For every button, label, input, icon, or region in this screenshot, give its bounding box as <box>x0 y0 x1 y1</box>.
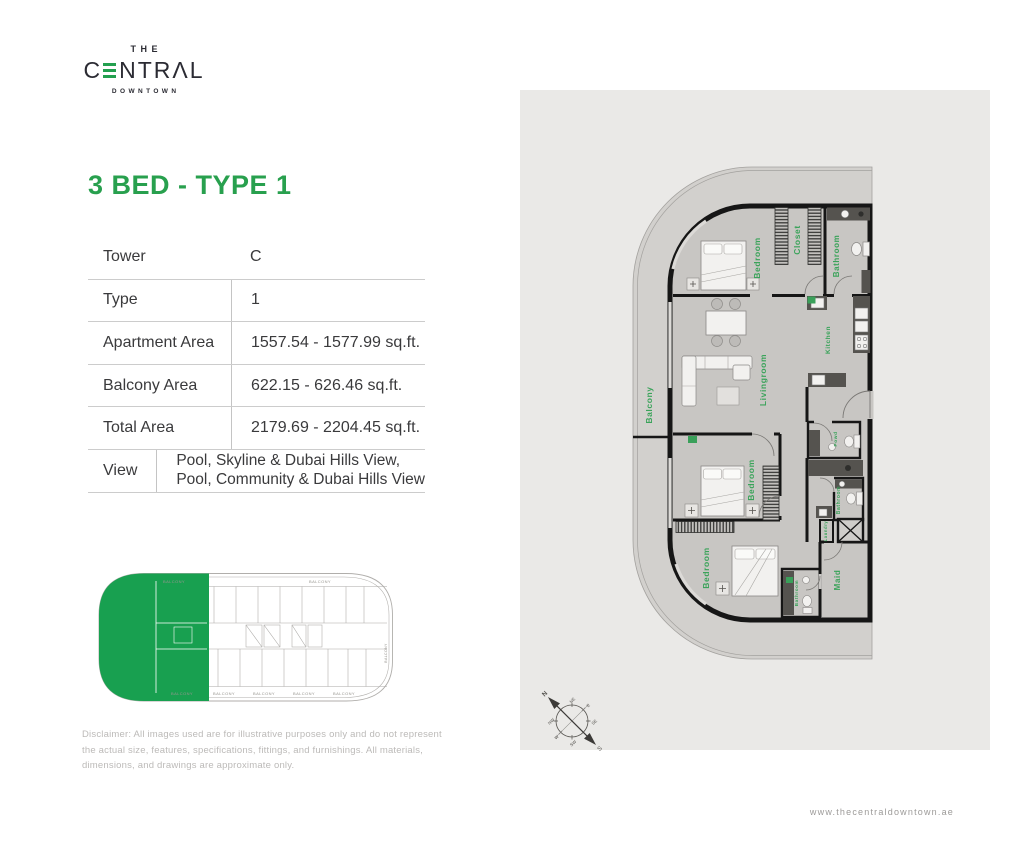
room-label-bedroom-bottom: Bedroom <box>701 547 711 589</box>
spec-label: Type <box>88 280 231 322</box>
svg-text:BALCONY: BALCONY <box>293 691 315 696</box>
room-label-balcony: Balcony <box>644 386 654 423</box>
room-label-bathroom-mid: Bathroom <box>836 486 842 514</box>
key-plan: BALCONY BALCONY BALCONY BALCONY BALCONY … <box>96 571 396 704</box>
room-label-bedroom-top: Bedroom <box>752 237 762 279</box>
room-label-laundry: Laundry <box>823 521 828 542</box>
svg-text:BALCONY: BALCONY <box>309 579 331 584</box>
room-label-closet: Closet <box>792 225 802 255</box>
svg-text:S: S <box>597 746 604 753</box>
compass-letters: N S E W NE SE SW NW <box>532 682 612 762</box>
svg-text:SE: SE <box>590 718 598 726</box>
room-label-powder: Powd <box>833 431 839 446</box>
keyplan-highlighted-unit <box>99 574 209 702</box>
svg-text:SW: SW <box>569 738 578 747</box>
logo-wordmark: C NTRΛL <box>84 57 204 84</box>
spec-row-view: View Pool, Skyline & Dubai Hills View, P… <box>88 449 425 493</box>
room-label-bedroom-mid: Bedroom <box>746 459 756 501</box>
spec-value: 622.15 - 626.46 sq.ft. <box>231 365 425 407</box>
logo-e-bars-icon <box>103 63 116 78</box>
room-label-kitchen: Kitchen <box>825 326 832 354</box>
svg-text:BALCONY: BALCONY <box>163 579 185 584</box>
spec-label: View <box>88 450 156 492</box>
spec-row-balcony-area: Balcony Area 622.15 - 626.46 sq.ft. <box>88 364 425 407</box>
floorplan-panel: Bedroom Closet Bathroom Kitchen Livingro… <box>520 90 990 750</box>
spec-table: Tower C Type 1 Apartment Area 1557.54 - … <box>88 236 425 493</box>
spec-value: C <box>231 236 425 279</box>
svg-text:NW: NW <box>547 716 556 725</box>
spec-value: 1557.54 - 1577.99 sq.ft. <box>231 322 425 364</box>
svg-text:BALCONY: BALCONY <box>253 691 275 696</box>
logo-subtitle: DOWNTOWN <box>84 88 204 95</box>
spec-label: Apartment Area <box>88 322 231 364</box>
page-title: 3 BED - TYPE 1 <box>88 170 292 201</box>
svg-text:W: W <box>553 733 560 740</box>
svg-text:N: N <box>541 690 549 698</box>
floorplan-drawing: Bedroom Closet Bathroom Kitchen Livingro… <box>520 90 990 750</box>
logo-the: THE <box>84 44 204 54</box>
room-label-bathroom-top: Bathroom <box>832 235 841 278</box>
spec-label: Total Area <box>88 407 231 449</box>
svg-text:NE: NE <box>568 696 576 704</box>
spec-value: 2179.69 - 2204.45 sq.ft. <box>231 407 425 449</box>
spec-value: Pool, Skyline & Dubai Hills View, Pool, … <box>156 450 425 492</box>
spec-row-apartment-area: Apartment Area 1557.54 - 1577.99 sq.ft. <box>88 321 425 364</box>
svg-text:BALCONY: BALCONY <box>171 691 193 696</box>
svg-text:BALCONY: BALCONY <box>213 691 235 696</box>
spec-row-type: Type 1 <box>88 279 425 322</box>
website-url: www.thecentraldowntown.ae <box>810 807 954 817</box>
svg-text:E: E <box>585 703 591 709</box>
disclaimer-text: Disclaimer: All images used are for illu… <box>82 727 482 774</box>
room-label-maid: Maid <box>833 570 842 591</box>
brand-logo: THE C NTRΛL DOWNTOWN <box>84 44 204 95</box>
spec-value: 1 <box>231 280 425 322</box>
logo-letter-c: C <box>83 57 102 84</box>
spec-label: Balcony Area <box>88 365 231 407</box>
spec-label: Tower <box>88 236 231 279</box>
spec-row-total-area: Total Area 2179.69 - 2204.45 sq.ft. <box>88 406 425 449</box>
spec-row-tower: Tower C <box>88 236 425 279</box>
room-label-livingroom: Livingroom <box>758 354 768 406</box>
logo-letters-rest: NTRΛL <box>119 57 204 84</box>
room-label-bathroom-maid: Bathroom <box>794 580 799 607</box>
svg-text:BALCONY: BALCONY <box>384 643 388 663</box>
svg-text:BALCONY: BALCONY <box>333 691 355 696</box>
compass-rose: N S E W NE SE SW NW <box>532 682 612 762</box>
